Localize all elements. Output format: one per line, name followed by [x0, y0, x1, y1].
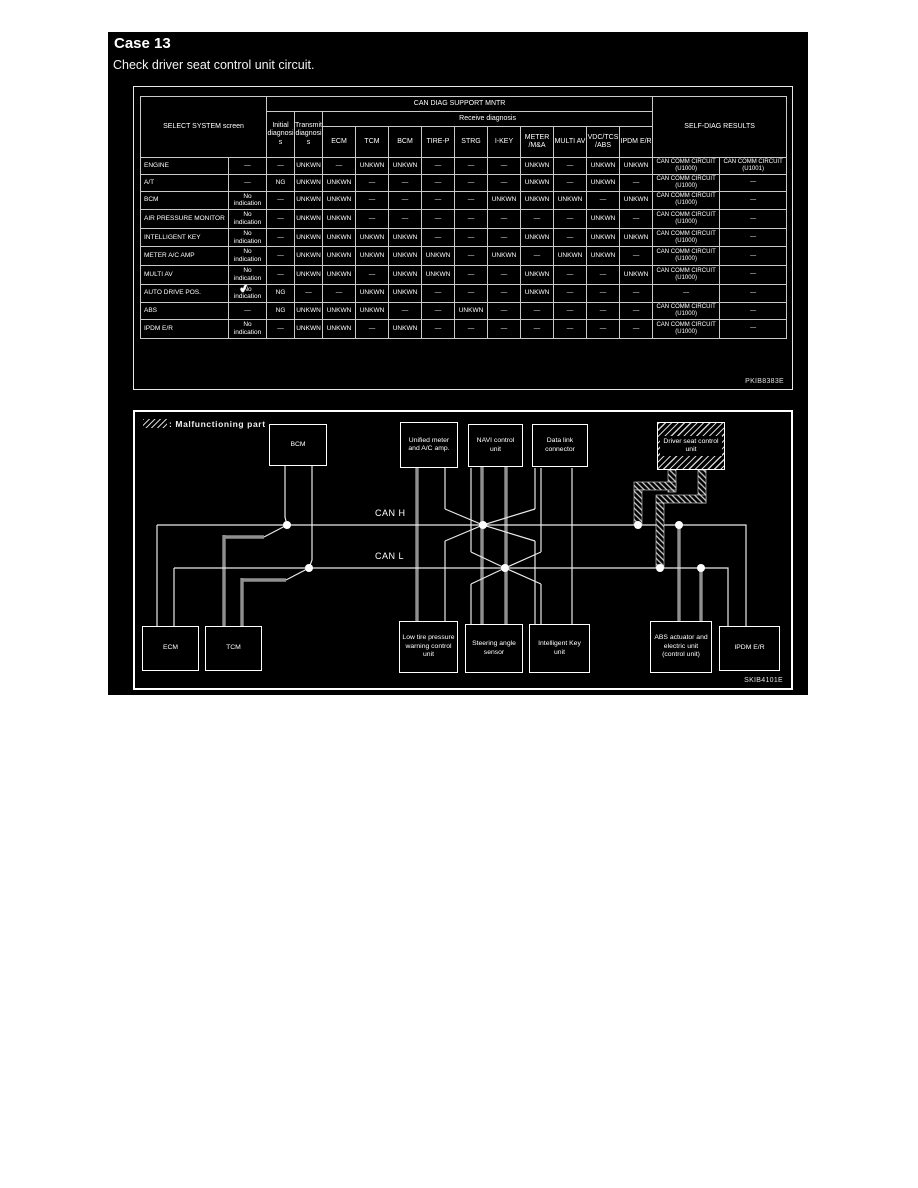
- system-name-cell: ABS: [141, 303, 229, 320]
- table-cell: —: [267, 210, 295, 229]
- table-cell: No indication: [229, 247, 267, 266]
- table-cell: UNKWN: [521, 265, 554, 284]
- col-bcm: BCM: [389, 127, 422, 158]
- table-cell: —: [455, 284, 488, 303]
- table-cell: UNKWN: [295, 191, 323, 210]
- box-intelligent-key-unit: Intelligent Key unit: [529, 624, 590, 673]
- box-navi-control-unit: NAVI control unit: [468, 424, 523, 467]
- table-cell: UNKWN: [422, 265, 455, 284]
- diagram-figure-code: SKIB4101E: [744, 677, 783, 684]
- can-h-label: CAN H: [375, 508, 406, 518]
- table-cell: —: [455, 247, 488, 266]
- table-cell: —: [554, 158, 587, 175]
- table-row: ENGINE——UNKWN—UNKWNUNKWN———UNKWN—UNKWNUN…: [141, 158, 787, 175]
- table-cell: UNKWN: [295, 158, 323, 175]
- table-cell: —: [620, 303, 653, 320]
- table-cell: —: [267, 228, 295, 247]
- col-ecm: ECM: [323, 127, 356, 158]
- table-cell: —: [356, 319, 389, 338]
- table-cell: —: [720, 228, 787, 247]
- table-cell: —: [521, 303, 554, 320]
- table-cell: —: [422, 319, 455, 338]
- table-cell: —: [554, 228, 587, 247]
- table-cell: —: [554, 284, 587, 303]
- table-cell: UNKWN: [521, 228, 554, 247]
- system-name-cell: BCM: [141, 191, 229, 210]
- table-cell: UNKWN: [521, 158, 554, 175]
- table-cell: —: [422, 191, 455, 210]
- table-cell: —: [720, 247, 787, 266]
- table-cell: UNKWN: [356, 228, 389, 247]
- system-name-cell: A/T: [141, 174, 229, 191]
- col-i-key: I-KEY: [488, 127, 521, 158]
- check-mark: ✓: [236, 284, 254, 299]
- table-cell: —: [554, 265, 587, 284]
- manual-page-panel: Case 13 Check driver seat control unit c…: [108, 30, 808, 695]
- table-cell: —: [422, 284, 455, 303]
- table-cell: —: [229, 303, 267, 320]
- table-header: SELECT SYSTEM screen CAN DIAG SUPPORT MN…: [141, 97, 787, 158]
- col-tcm: TCM: [356, 127, 389, 158]
- table-cell: —: [267, 247, 295, 266]
- table-cell: —: [488, 319, 521, 338]
- table-cell: —: [720, 284, 787, 303]
- table-cell: —: [356, 191, 389, 210]
- driver-seat-label: Driver seat control unit: [660, 436, 722, 457]
- table-cell: —: [455, 228, 488, 247]
- table-cell: UNKWN: [323, 303, 356, 320]
- table-cell: —: [653, 284, 720, 303]
- table-cell: —: [267, 158, 295, 175]
- table-cell: —: [267, 319, 295, 338]
- table-cell: UNKWN: [389, 228, 422, 247]
- col-tire-p: TIRE-P: [422, 127, 455, 158]
- table-cell: UNKWN: [295, 174, 323, 191]
- table-cell: UNKWN: [587, 174, 620, 191]
- table-cell: UNKWN: [587, 247, 620, 266]
- table-row: IPDM E/RNo indication—UNKWNUNKWN—UNKWN——…: [141, 319, 787, 338]
- table-cell: UNKWN: [455, 303, 488, 320]
- table-cell: —: [422, 158, 455, 175]
- table-cell: —: [229, 174, 267, 191]
- col-meter-ma: METER /M&A: [521, 127, 554, 158]
- table-cell: —: [587, 319, 620, 338]
- table-cell: —: [356, 210, 389, 229]
- table-cell: UNKWN: [356, 303, 389, 320]
- header-self-diag: SELF-DIAG RESULTS: [653, 97, 787, 158]
- system-name-cell: AIR PRESSURE MONITOR: [141, 210, 229, 229]
- table-cell: —: [521, 247, 554, 266]
- table-row: A/T—NGUNKWNUNKWN—————UNKWN—UNKWN—CAN COM…: [141, 174, 787, 191]
- table-row: MULTI AVNo indication—UNKWNUNKWN—UNKWNUN…: [141, 265, 787, 284]
- table-cell: —: [620, 247, 653, 266]
- table-cell: UNKWN: [521, 284, 554, 303]
- table-cell: CAN COMM CIRCUIT (U1000): [653, 228, 720, 247]
- header-select-system: SELECT SYSTEM screen: [141, 97, 267, 158]
- table-cell: UNKWN: [323, 210, 356, 229]
- table-cell: UNKWN: [323, 174, 356, 191]
- table-cell: —: [422, 174, 455, 191]
- table-cell: CAN COMM CIRCUIT (U1000): [653, 174, 720, 191]
- table-cell: CAN COMM CIRCUIT (U1000): [653, 158, 720, 175]
- table-cell: —: [455, 265, 488, 284]
- table-row: ABS—NGUNKWNUNKWNUNKWN——UNKWN—————CAN COM…: [141, 303, 787, 320]
- table-cell: —: [720, 319, 787, 338]
- table-cell: —: [720, 303, 787, 320]
- case-title: Case 13: [114, 35, 171, 52]
- table-cell: —: [323, 284, 356, 303]
- table-cell: UNKWN: [620, 265, 653, 284]
- table-cell: UNKWN: [389, 284, 422, 303]
- table-cell: No indication: [229, 191, 267, 210]
- table-cell: —: [267, 265, 295, 284]
- table-cell: UNKWN: [587, 158, 620, 175]
- box-driver-seat-control-unit: Driver seat control unit: [657, 422, 725, 470]
- table-cell: UNKWN: [323, 265, 356, 284]
- table-cell: UNKWN: [295, 319, 323, 338]
- col-vdc-tcs-abs: VDC/TCS /ABS: [587, 127, 620, 158]
- table-cell: —: [488, 210, 521, 229]
- table-cell: CAN COMM CIRCUIT (U1000): [653, 303, 720, 320]
- box-data-link-connector: Data link connector: [532, 424, 588, 467]
- harness-lines-thick: [224, 467, 701, 626]
- table-cell: UNKWN: [323, 191, 356, 210]
- table-cell: —: [720, 174, 787, 191]
- header-can-diag: CAN DIAG SUPPORT MNTR: [267, 97, 653, 112]
- table-row: INTELLIGENT KEYNo indication—UNKWNUNKWNU…: [141, 228, 787, 247]
- table-cell: —: [587, 265, 620, 284]
- table-cell: —: [488, 174, 521, 191]
- table-cell: —: [521, 210, 554, 229]
- table-cell: —: [422, 228, 455, 247]
- table-cell: UNKWN: [389, 158, 422, 175]
- table-cell: No indication: [229, 228, 267, 247]
- box-ipdm-er: IPDM E/R: [719, 626, 780, 671]
- table-cell: —: [720, 191, 787, 210]
- box-bcm: BCM: [269, 424, 327, 466]
- table-cell: —: [554, 174, 587, 191]
- table-cell: —: [229, 158, 267, 175]
- box-low-tire-pressure: Low tire pressure warning control unit: [399, 621, 458, 673]
- table-cell: —: [488, 284, 521, 303]
- table-cell: —: [422, 210, 455, 229]
- table-cell: —: [554, 319, 587, 338]
- table-cell: No indication: [229, 319, 267, 338]
- box-ecm: ECM: [142, 626, 199, 671]
- table-cell: UNKWN: [323, 319, 356, 338]
- header-receive-diagnosis: Receive diagnosis: [323, 112, 653, 127]
- table-cell: UNKWN: [620, 191, 653, 210]
- table-cell: CAN COMM CIRCUIT (U1000): [653, 247, 720, 266]
- table-cell: UNKWN: [587, 228, 620, 247]
- table-cell: UNKWN: [587, 210, 620, 229]
- table-cell: —: [356, 174, 389, 191]
- diagnosis-table-frame: SELECT SYSTEM screen CAN DIAG SUPPORT MN…: [133, 86, 793, 390]
- table-cell: UNKWN: [295, 228, 323, 247]
- system-name-cell: IPDM E/R: [141, 319, 229, 338]
- table-cell: —: [488, 158, 521, 175]
- system-name-cell: AUTO DRIVE POS.: [141, 284, 229, 303]
- table-cell: UNKWN: [295, 247, 323, 266]
- table-cell: —: [323, 158, 356, 175]
- table-cell: UNKWN: [521, 174, 554, 191]
- col-multi-av: MULTI AV: [554, 127, 587, 158]
- table-cell: —: [455, 158, 488, 175]
- table-cell: No indication✓: [229, 284, 267, 303]
- table-cell: —: [720, 265, 787, 284]
- table-cell: —: [554, 303, 587, 320]
- hatch-swatch-icon: [143, 419, 167, 428]
- header-initial-diagnosis: Initial diagnosis: [267, 112, 295, 158]
- table-cell: NG: [267, 303, 295, 320]
- col-strg: STRG: [455, 127, 488, 158]
- box-tcm: TCM: [205, 626, 262, 671]
- table-cell: —: [455, 319, 488, 338]
- table-cell: UNKWN: [389, 265, 422, 284]
- system-name-cell: ENGINE: [141, 158, 229, 175]
- diag-table-body: ENGINE——UNKWN—UNKWNUNKWN———UNKWN—UNKWNUN…: [141, 158, 787, 339]
- table-cell: —: [422, 303, 455, 320]
- table-row: AIR PRESSURE MONITORNo indication—UNKWNU…: [141, 210, 787, 229]
- table-cell: UNKWN: [554, 191, 587, 210]
- table-row: METER A/C AMPNo indication—UNKWNUNKWNUNK…: [141, 247, 787, 266]
- table-cell: —: [521, 319, 554, 338]
- table-cell: UNKWN: [521, 191, 554, 210]
- table-cell: —: [587, 284, 620, 303]
- table-cell: —: [455, 174, 488, 191]
- table-cell: —: [720, 210, 787, 229]
- table-cell: UNKWN: [389, 319, 422, 338]
- table-cell: —: [620, 174, 653, 191]
- table-cell: UNKWN: [620, 228, 653, 247]
- col-ipdm-er: IPDM E/R: [620, 127, 653, 158]
- table-cell: —: [267, 191, 295, 210]
- table-cell: —: [389, 210, 422, 229]
- table-cell: —: [488, 265, 521, 284]
- table-cell: CAN COMM CIRCUIT (U1001): [720, 158, 787, 175]
- table-figure-code: PKIB8383E: [745, 378, 784, 385]
- can-l-label: CAN L: [375, 551, 404, 561]
- table-cell: UNKWN: [422, 247, 455, 266]
- table-cell: CAN COMM CIRCUIT (U1000): [653, 265, 720, 284]
- table-cell: —: [389, 174, 422, 191]
- table-cell: —: [554, 210, 587, 229]
- table-cell: —: [389, 303, 422, 320]
- table-cell: CAN COMM CIRCUIT (U1000): [653, 210, 720, 229]
- table-cell: —: [389, 191, 422, 210]
- table-cell: No indication: [229, 265, 267, 284]
- table-cell: UNKWN: [554, 247, 587, 266]
- table-cell: UNKWN: [488, 191, 521, 210]
- box-steering-angle-sensor: Steering angle sensor: [465, 624, 523, 673]
- table-cell: CAN COMM CIRCUIT (U1000): [653, 191, 720, 210]
- table-row: BCMNo indication—UNKWNUNKWN————UNKWNUNKW…: [141, 191, 787, 210]
- system-name-cell: METER A/C AMP: [141, 247, 229, 266]
- table-cell: —: [620, 284, 653, 303]
- table-cell: —: [587, 191, 620, 210]
- table-cell: UNKWN: [323, 228, 356, 247]
- malfunctioning-part-legend: : Malfunctioning part: [143, 419, 266, 429]
- table-cell: UNKWN: [356, 247, 389, 266]
- system-name-cell: MULTI AV: [141, 265, 229, 284]
- table-cell: —: [488, 303, 521, 320]
- can-diag-support-table: SELECT SYSTEM screen CAN DIAG SUPPORT MN…: [140, 96, 787, 339]
- table-cell: UNKWN: [488, 247, 521, 266]
- table-cell: —: [295, 284, 323, 303]
- case-subtitle: Check driver seat control unit circuit.: [113, 58, 314, 72]
- table-row: AUTO DRIVE POS.No indication✓NG——UNKWNUN…: [141, 284, 787, 303]
- table-cell: CAN COMM CIRCUIT (U1000): [653, 319, 720, 338]
- table-cell: —: [488, 228, 521, 247]
- table-cell: —: [356, 265, 389, 284]
- table-cell: —: [620, 210, 653, 229]
- table-cell: UNKWN: [389, 247, 422, 266]
- can-l-line: [174, 568, 728, 626]
- table-cell: No indication: [229, 210, 267, 229]
- table-cell: —: [620, 319, 653, 338]
- box-unified-meter: Unified meter and A/C amp.: [400, 422, 458, 468]
- table-cell: —: [587, 303, 620, 320]
- table-cell: —: [455, 191, 488, 210]
- table-cell: UNKWN: [295, 265, 323, 284]
- wiring-diagram-frame: : Malfunctioning part CAN H CAN L BCM Un…: [133, 410, 793, 690]
- malfunction-lead-hatched: [634, 470, 706, 568]
- box-abs-actuator: ABS actuator and electric unit (control …: [650, 621, 712, 673]
- system-name-cell: INTELLIGENT KEY: [141, 228, 229, 247]
- legend-label: : Malfunctioning part: [169, 419, 266, 429]
- table-cell: UNKWN: [356, 284, 389, 303]
- header-transmit-diagnosis: Transmit diagnosis: [295, 112, 323, 158]
- table-cell: UNKWN: [295, 210, 323, 229]
- table-cell: NG: [267, 284, 295, 303]
- table-cell: —: [455, 210, 488, 229]
- table-cell: UNKWN: [295, 303, 323, 320]
- table-cell: UNKWN: [356, 158, 389, 175]
- table-cell: UNKWN: [620, 158, 653, 175]
- table-cell: UNKWN: [323, 247, 356, 266]
- table-cell: NG: [267, 174, 295, 191]
